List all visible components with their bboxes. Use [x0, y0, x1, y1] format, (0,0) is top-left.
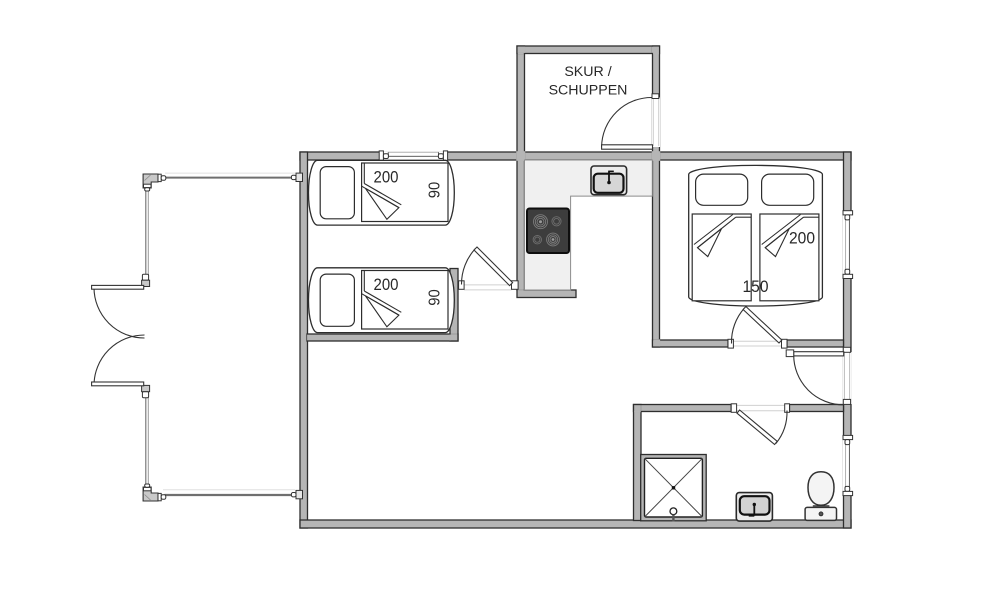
svg-text:200: 200: [374, 168, 399, 187]
svg-text:200: 200: [789, 229, 815, 248]
svg-text:90: 90: [427, 289, 444, 306]
svg-text:SCHUPPEN: SCHUPPEN: [549, 83, 628, 99]
svg-text:SKUR /: SKUR /: [564, 64, 611, 80]
svg-text:90: 90: [427, 182, 444, 199]
svg-text:150: 150: [743, 277, 769, 296]
svg-text:200: 200: [374, 275, 399, 294]
